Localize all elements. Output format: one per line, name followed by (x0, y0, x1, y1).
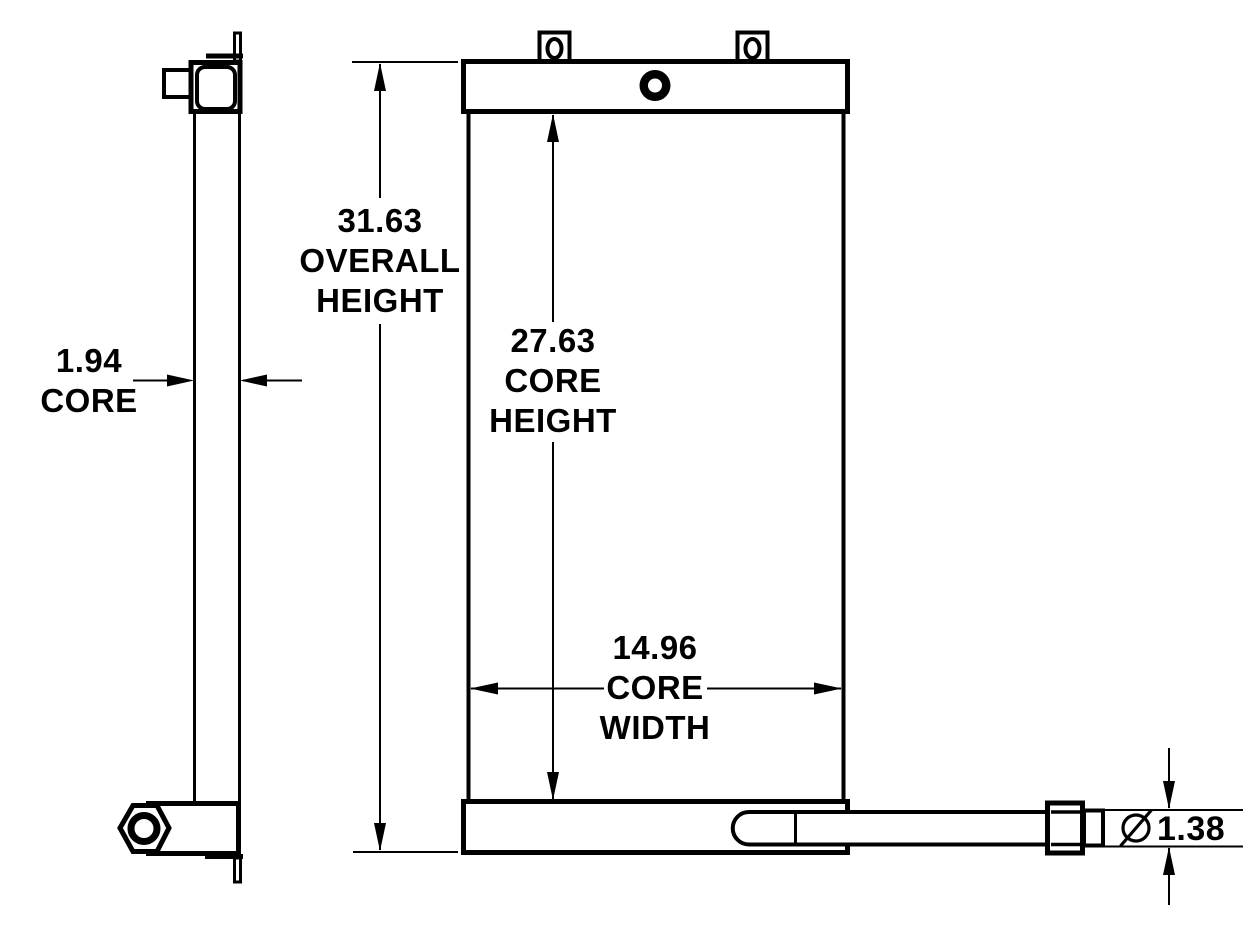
outlet-tube-inner-end (733, 812, 798, 845)
side-top-port-fitting (164, 70, 191, 97)
dim-core-depth-arrow-right (167, 375, 194, 387)
dim-core-depth-arrow-left (240, 375, 267, 387)
dim-core-height-arrow-down (547, 772, 559, 800)
dim-core-height-text1: CORE (489, 361, 617, 401)
dim-overall-height-arrow-down (374, 823, 386, 851)
dim-core-width-text1: CORE (600, 668, 711, 708)
filler-port-bore (648, 79, 662, 93)
dim-overall-height-label: 31.63 OVERALL HEIGHT (299, 201, 460, 321)
dim-core-depth-text: CORE (40, 381, 137, 421)
dim-overall-height-value: 31.63 (299, 201, 460, 241)
dim-core-height-arrow-up (547, 114, 559, 142)
drawing-linework (0, 0, 1250, 935)
diameter-symbol-icon (1121, 810, 1152, 846)
dim-core-depth-label: 1.94 CORE (40, 341, 137, 421)
tank-wall-tube-gap (838, 814, 851, 843)
dim-tube-diameter-arrow-down (1163, 781, 1175, 809)
dim-core-width-arrow-right (814, 683, 842, 695)
dim-core-height-text2: HEIGHT (489, 401, 617, 441)
dim-overall-height-text1: OVERALL (299, 241, 460, 281)
outlet-tube-end (1084, 811, 1103, 846)
top-bracket-left-hole (548, 39, 562, 58)
side-top-tank-inner (197, 67, 235, 109)
dim-overall-height (352, 62, 458, 852)
dim-core-height-value: 27.63 (489, 321, 617, 361)
dim-core-width-arrow-left (470, 683, 498, 695)
dim-core-width-value: 14.96 (600, 628, 711, 668)
dim-tube-diameter-arrow-up (1163, 847, 1175, 875)
dim-core-depth (133, 375, 302, 387)
side-bottom-bracket-tab (235, 858, 241, 882)
dim-core-height (547, 114, 559, 800)
dim-tube-diameter-value: 1.38 (1157, 811, 1225, 847)
top-bracket-right-hole (746, 39, 760, 58)
dim-core-width-label: 14.96 CORE WIDTH (600, 628, 711, 748)
dim-core-width-text2: WIDTH (600, 708, 711, 748)
side-view (120, 33, 243, 882)
technical-drawing: 31.63 OVERALL HEIGHT 27.63 CORE HEIGHT 1… (0, 0, 1250, 935)
dim-core-height-label: 27.63 CORE HEIGHT (489, 321, 617, 441)
side-hex-fitting-bore (131, 816, 157, 842)
top-bracket-right (738, 33, 768, 62)
front-view (464, 33, 1104, 854)
dim-core-depth-value: 1.94 (40, 341, 137, 381)
dim-overall-height-text2: HEIGHT (299, 281, 460, 321)
dim-overall-height-arrow-up (374, 63, 386, 91)
top-bracket-left (540, 33, 570, 62)
